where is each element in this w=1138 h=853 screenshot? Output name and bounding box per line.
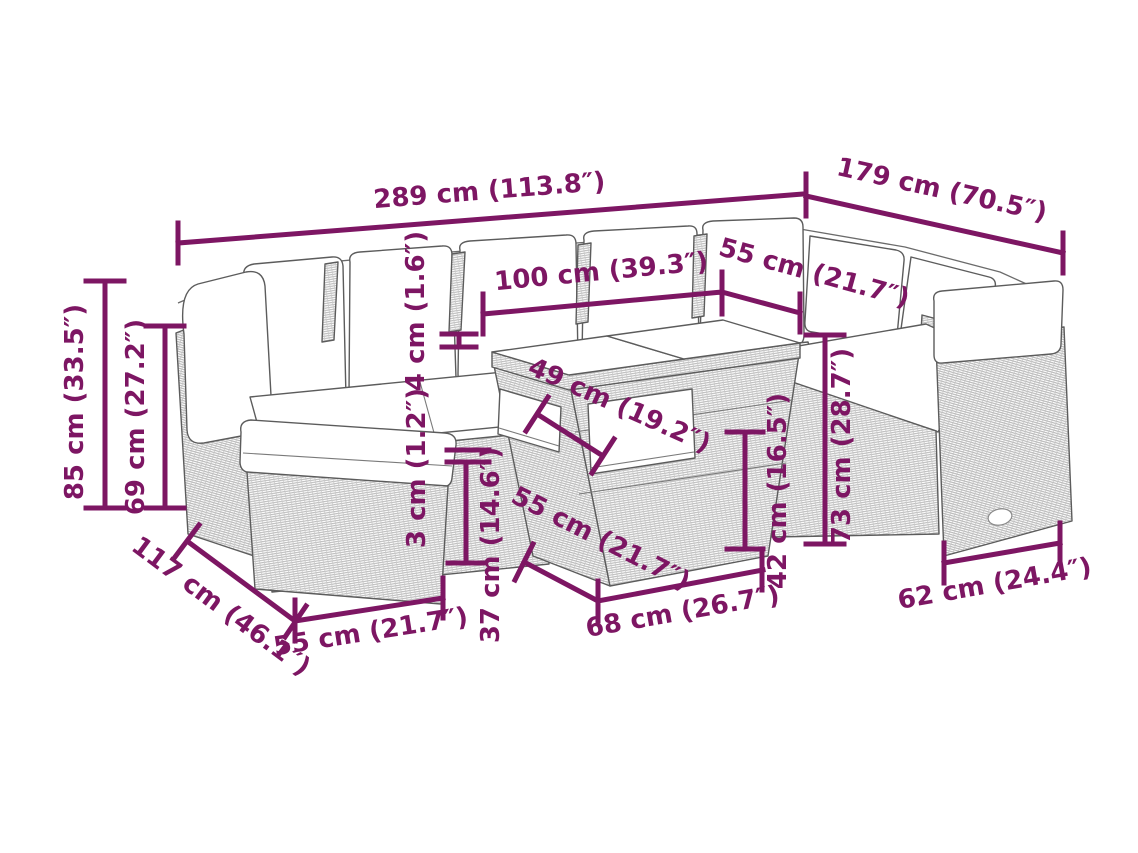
dimension-label: 289 cm (113.8″) xyxy=(372,167,606,215)
dimension-line xyxy=(86,281,124,508)
product-dimension-diagram: 289 cm (113.8″) 179 cm (70.5″) 100 cm (3… xyxy=(0,0,1138,853)
dimension-label: 73 cm (28.7″) xyxy=(827,348,857,544)
right-arm-cushion xyxy=(934,281,1063,363)
dim-overall-height: 85 cm (33.5″) xyxy=(60,281,124,508)
dimension-label: 3 cm (1.2″) xyxy=(402,388,432,548)
dimension-label: 69 cm (27.2″) xyxy=(121,319,151,515)
dimension-label: 62 cm (24.4″) xyxy=(895,552,1094,616)
dim-back-height: 69 cm (27.2″) xyxy=(121,319,184,515)
dimension-label: 42 cm (16.5″) xyxy=(763,393,793,589)
furniture-diagram-svg: 289 cm (113.8″) 179 cm (70.5″) 100 cm (3… xyxy=(0,0,1138,853)
dimension-label: 4 cm (1.6″) xyxy=(401,231,431,391)
dimension-label: 85 cm (33.5″) xyxy=(60,304,90,500)
dimension-label: 37 cm (14.6″) xyxy=(476,447,506,643)
dimension-label: 179 cm (70.5″) xyxy=(834,152,1050,228)
